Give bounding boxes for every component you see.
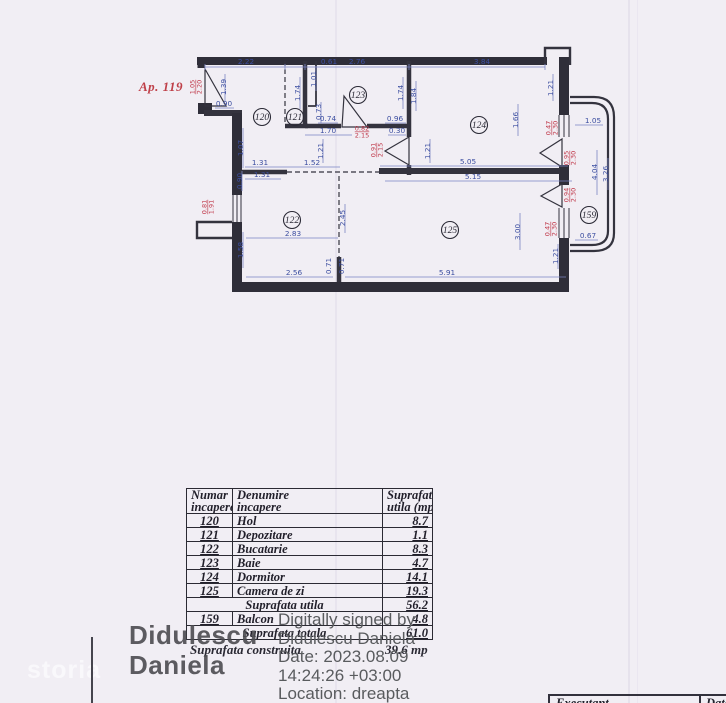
door-dimension-label: 0.952.30: [563, 151, 578, 165]
table-row: 125Camera de zi19.3: [187, 584, 433, 598]
row-room-number: 122: [187, 542, 233, 556]
row-area-value: 8.7: [383, 514, 433, 528]
header-denumire-incapere: Denumireincapere: [233, 489, 383, 514]
room-number: 125: [443, 226, 458, 236]
dimension-label: 0.67: [580, 231, 597, 240]
room-number: 121: [288, 113, 302, 123]
row-room-number: 124: [187, 570, 233, 584]
signature-detail-line: Digitally signed by: [278, 611, 415, 630]
room-number: 159: [582, 211, 597, 221]
signature-name-line1: Didulescu: [129, 620, 258, 650]
row-area-value: 14.1: [383, 570, 433, 584]
dimension-label: 3.84: [474, 57, 491, 66]
door-dimension-label: 0.472.30: [544, 222, 559, 236]
room-number: 123: [351, 91, 366, 101]
row-room-name: Baie: [233, 556, 383, 570]
signature-name-line2: Daniela: [129, 650, 258, 680]
signature-detail-line: 14:24:26 +03:00: [278, 667, 415, 686]
storia-watermark: storia: [27, 656, 101, 685]
apartment-number-label: Ap. 119: [139, 79, 183, 95]
row-room-name: Hol: [233, 514, 383, 528]
dimension-label: 4.04: [590, 164, 599, 181]
door-dimension-label: 0.912.15: [370, 143, 385, 157]
table-row: 120Hol8.7: [187, 514, 433, 528]
signature-detail-line: Date: 2023.08.09: [278, 648, 415, 667]
dimension-label: 2.56: [286, 268, 303, 277]
dimension-label: 1.21: [551, 248, 560, 264]
dimension-label: 1.31: [254, 170, 270, 179]
dimension-label: 1.05: [585, 116, 601, 125]
row-room-name: Bucatarie: [233, 542, 383, 556]
dimension-label: 3.00: [513, 224, 522, 241]
room-number: 124: [472, 121, 487, 131]
table-header-row: Numarincapere Denumireincapere Suprafata…: [187, 489, 433, 514]
titleblock-divider: [548, 694, 550, 703]
dimension-label: 0.30: [389, 126, 406, 135]
table-row: 123Baie4.7: [187, 556, 433, 570]
signature-detail-line: Didulescu Daniela: [278, 630, 415, 649]
door-dimension-label: 1.052.20: [189, 80, 204, 94]
dimension-label: 1.66: [511, 112, 520, 129]
dimension-label: 2.22: [238, 57, 254, 66]
header-suprafata-utila: Suprafatautila (mp): [383, 489, 433, 514]
digital-signature-details: Digitally signed by Didulescu Daniela Da…: [278, 611, 415, 703]
dimension-label: 2.83: [285, 229, 302, 238]
dimension-label: 1.21: [316, 143, 325, 159]
dimension-label: 0.90: [235, 173, 244, 190]
dimension-label: 0.71: [337, 258, 346, 274]
row-room-name: Depozitare: [233, 528, 383, 542]
room-number: 122: [285, 216, 300, 226]
dimension-label: 1.01: [309, 71, 318, 87]
row-room-number: 125: [187, 584, 233, 598]
header-numar-incapere: Numarincapere: [187, 489, 233, 514]
dimension-label: 1.31: [252, 158, 268, 167]
data-label: Data: [706, 696, 726, 703]
dimension-label: 2.45: [338, 210, 347, 226]
table-row: 122Bucatarie8.3: [187, 542, 433, 556]
row-area-value: 8.3: [383, 542, 433, 556]
room-number: 120: [255, 113, 270, 123]
dimension-label: 5.05: [460, 157, 476, 166]
dimension-label: 1.07: [236, 140, 245, 157]
row-area-value: 1.1: [383, 528, 433, 542]
row-area-value: 4.7: [383, 556, 433, 570]
dimension-label: 5.15: [465, 172, 481, 181]
scanned-floorplan-page: 2.220.612.763.841.390.901.741.010.730.74…: [0, 0, 726, 703]
dimension-label: 1.58: [236, 242, 245, 259]
dimension-label: 0.96: [387, 114, 404, 123]
door-dimension-label: 0.811.91: [201, 200, 216, 214]
row-room-name: Camera de zi: [233, 584, 383, 598]
dimension-label: 1.52: [304, 158, 320, 167]
dimension-label: 0.74: [320, 114, 337, 123]
page-frame-line: [91, 637, 93, 703]
table-row: 121Depozitare1.1: [187, 528, 433, 542]
door-dimension-label: 0.822.15: [355, 125, 369, 140]
dimension-label: 5.91: [439, 268, 455, 277]
dimension-label: 0.71: [324, 258, 333, 274]
table-row: 124Dormitor14.1: [187, 570, 433, 584]
dimension-label: 2.76: [349, 57, 366, 66]
door-swing-symbols: [205, 69, 562, 207]
dimension-label: 1.74: [293, 85, 302, 102]
row-area-value: 19.3: [383, 584, 433, 598]
dimension-label: 1.39: [219, 79, 228, 96]
row-room-number: 123: [187, 556, 233, 570]
row-room-name: Dormitor: [233, 570, 383, 584]
dimension-label: 1.21: [546, 80, 555, 96]
signature-detail-line: Location: dreapta: [278, 685, 415, 703]
door-dimension-label: 0.472.30: [545, 121, 560, 135]
digital-signature-name: Didulescu Daniela: [129, 620, 258, 680]
dimension-label: 0.90: [216, 99, 233, 108]
executant-label: Executant: [556, 696, 609, 703]
dimension-label: 1.84: [409, 88, 418, 105]
door-dimension-label: 0.942.30: [563, 188, 578, 202]
dimension-label: 1.70: [320, 126, 337, 135]
row-room-number: 120: [187, 514, 233, 528]
dimension-label: 0.61: [321, 57, 337, 66]
dimension-label: 1.21: [423, 143, 432, 159]
dimension-label: 1.74: [396, 85, 405, 102]
row-room-number: 121: [187, 528, 233, 542]
dimension-label: 3.26: [601, 166, 610, 183]
titleblock-divider: [699, 694, 701, 703]
